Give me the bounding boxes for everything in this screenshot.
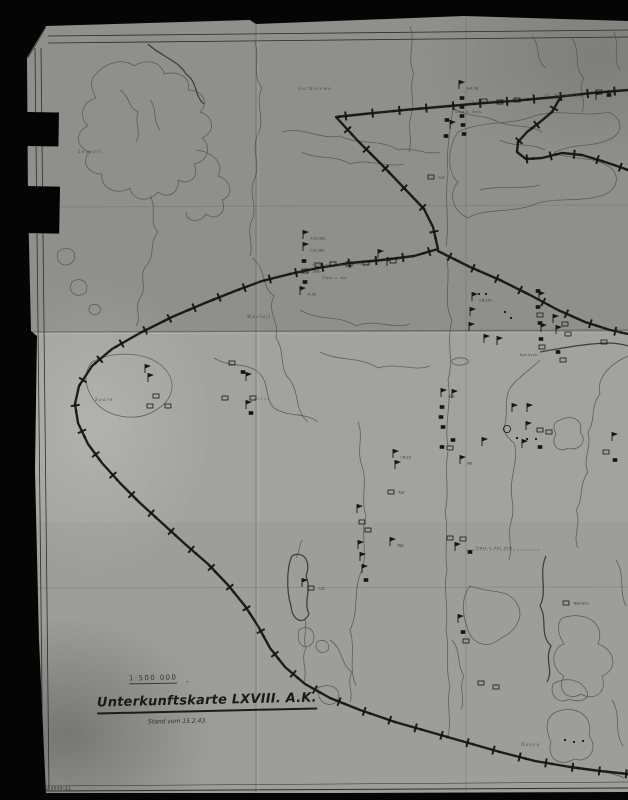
unit-label: Kgr. — [399, 490, 406, 494]
unit-rect-filled — [444, 134, 449, 138]
boundary-dot — [343, 703, 346, 706]
unit-label: Stab — [313, 269, 322, 273]
boundary-dot — [388, 171, 391, 174]
unit-symbol — [303, 280, 308, 284]
unit-symbol — [536, 305, 541, 309]
unit-symbol — [539, 337, 544, 341]
unit-rect-filled — [303, 280, 308, 284]
unit-label: I.R.151 — [480, 298, 493, 302]
boundary-dot — [532, 157, 535, 160]
map-date-line: Stand vom 15.2.43. — [148, 717, 207, 725]
boundary-dot — [232, 591, 235, 594]
unit-symbol — [440, 445, 445, 449]
unit-symbol — [516, 437, 518, 439]
place-label: O. Bershino — [545, 94, 583, 99]
boundary-dot — [477, 269, 480, 272]
unit-dot — [564, 739, 566, 741]
boundary-tick — [614, 87, 615, 96]
boundary-dot — [237, 288, 240, 291]
boundary-dot — [579, 154, 582, 157]
unit-rect-filled — [536, 305, 541, 309]
boundary-dot — [527, 98, 530, 101]
boundary-tick — [527, 154, 528, 163]
boundary-dot — [319, 691, 322, 694]
boundary-tick — [399, 106, 400, 115]
boundary-dot — [473, 103, 476, 106]
unit-rect-filled — [439, 415, 444, 419]
boundary-dot — [499, 279, 502, 282]
boundary-dot — [350, 133, 353, 136]
unit-rect-filled — [364, 578, 369, 582]
unit-symbol — [302, 259, 307, 263]
unit-label: Nachsch. — [574, 601, 590, 605]
boundary-dot — [595, 324, 598, 327]
boundary-dot — [420, 728, 423, 731]
unit-symbol — [478, 293, 480, 295]
boundary-dot — [599, 770, 602, 773]
unit-rect-filled — [613, 458, 618, 462]
place-label: Nasva — [520, 743, 540, 748]
boundary-dot — [449, 105, 452, 108]
boundary-dot — [419, 107, 422, 110]
unit-symbol — [485, 293, 487, 295]
boundary-dot — [163, 320, 166, 323]
boundary-dot — [524, 291, 527, 294]
micro-annotation: Tross u. Kol. Arm. — [475, 546, 514, 550]
boundary-dot — [338, 115, 341, 118]
unit-label: A.A.18 — [467, 86, 479, 90]
unit-dot — [516, 437, 518, 439]
boundary-dot — [577, 767, 580, 770]
unit-symbol — [460, 114, 465, 118]
unit-symbol — [526, 438, 528, 440]
micro-annotation: Stab u. Vers. — [455, 110, 483, 114]
photo-bottom-edge — [0, 793, 628, 800]
boundary-dot — [547, 304, 550, 307]
unit-dot — [573, 741, 575, 743]
micro-annotation: Nachsch. — [520, 353, 539, 357]
boundary-dot — [94, 362, 97, 365]
boundary-tick — [426, 104, 427, 113]
boundary-dot — [446, 736, 449, 739]
unit-dot — [504, 311, 506, 313]
boundary-dot — [263, 279, 266, 282]
boundary-dot — [115, 345, 118, 348]
unit-symbol — [461, 123, 466, 127]
unit-dot — [535, 438, 537, 440]
unit-symbol — [504, 311, 506, 313]
unit-symbol — [441, 425, 446, 429]
boundary-dot — [601, 160, 604, 163]
boundary-dot — [75, 410, 78, 413]
unit-symbol — [607, 93, 612, 97]
unit-rect-filled — [461, 123, 466, 127]
unit-symbol — [613, 458, 618, 462]
unit-rect-filled — [556, 350, 561, 354]
unit-label: I./G.283 — [311, 248, 325, 252]
boundary-dot — [625, 168, 628, 171]
boundary-tick — [402, 253, 403, 262]
boundary-dot — [571, 315, 574, 318]
unit-label: Laz. — [319, 586, 326, 590]
unit-symbol — [510, 317, 512, 319]
photo-tab-lower — [23, 186, 60, 234]
unit-symbol — [451, 438, 456, 442]
unit-label: I.R.23 — [401, 455, 411, 459]
unit-rect-filled — [302, 259, 307, 263]
place-label: Wuoleji — [247, 315, 271, 320]
unit-label: Pi.32 — [308, 292, 317, 296]
boundary-dot — [404, 188, 407, 191]
unit-symbol — [445, 118, 450, 122]
unit-label: Btl. — [468, 461, 474, 465]
unit-rect-filled — [460, 96, 465, 100]
boundary-tick — [480, 99, 481, 108]
boundary-dot — [517, 141, 520, 144]
unit-rect-filled — [461, 630, 466, 634]
unit-rect-filled — [249, 411, 254, 415]
place-label: Garbolowo — [298, 87, 332, 92]
unit-symbol — [573, 741, 575, 743]
boundary-dot — [551, 763, 554, 766]
boundary-tick — [345, 111, 346, 120]
boundary-dot — [174, 534, 177, 537]
unit-symbol — [439, 415, 444, 419]
boundary-tick — [534, 95, 535, 104]
boundary-dot — [98, 458, 101, 461]
unit-rect-filled — [440, 445, 445, 449]
unit-rect-filled — [468, 550, 473, 554]
unit-dot — [582, 740, 584, 742]
edge-mark: u 4049-43 — [46, 786, 71, 791]
place-label: Saare — [95, 398, 113, 403]
boundary-dot — [154, 516, 157, 519]
boundary-dot — [116, 478, 119, 481]
map-canvas: II./G.283I./G.283StabPi.32A.A.18Laz.I.R.… — [0, 0, 628, 800]
boundary-dot — [262, 635, 265, 638]
unit-rect-filled — [538, 445, 543, 449]
unit-rect-filled — [460, 105, 465, 109]
unit-rect-filled — [445, 118, 450, 122]
unit-dot — [485, 293, 487, 295]
boundary-dot — [214, 571, 217, 574]
unit-symbol — [241, 370, 246, 374]
place-label: Lepsari — [77, 150, 102, 155]
boundary-dot — [392, 110, 395, 113]
unit-symbol — [460, 96, 465, 100]
unit-dot — [510, 317, 512, 319]
unit-symbol — [535, 438, 537, 440]
boundary-dot — [524, 757, 527, 760]
unit-symbol — [564, 739, 566, 741]
boundary-dot — [342, 263, 345, 266]
unit-rect-filled — [539, 337, 544, 341]
boundary-dot — [423, 208, 426, 211]
unit-symbol — [249, 411, 254, 415]
boundary-tick — [574, 150, 575, 159]
boundary-dot — [289, 273, 292, 276]
unit-symbol — [582, 740, 584, 742]
boundary-tick — [626, 769, 627, 778]
boundary-dot — [454, 258, 457, 261]
unit-label: Laz. — [439, 175, 446, 179]
boundary-dot — [422, 252, 425, 255]
boundary-dot — [248, 612, 251, 615]
boundary-dot — [394, 721, 397, 724]
boundary-dot — [194, 552, 197, 555]
photo-tab-upper — [26, 112, 59, 147]
boundary-dot — [83, 435, 86, 438]
boundary-tick — [453, 101, 454, 110]
boundary-dot — [296, 676, 299, 679]
unit-symbol — [461, 630, 466, 634]
unit-symbol — [460, 105, 465, 109]
boundary-tick — [372, 109, 373, 118]
boundary-tick — [71, 405, 80, 406]
unit-symbol — [556, 350, 561, 354]
micro-annotation: Tross u. Kol. — [321, 276, 349, 280]
unit-rect-filled — [607, 93, 612, 97]
boundary-dot — [187, 309, 190, 312]
unit-label: II./G.283 — [311, 236, 326, 240]
boundary-dot — [607, 90, 610, 93]
unit-rect-filled — [441, 425, 446, 429]
unit-symbol — [538, 445, 543, 449]
boundary-dot — [277, 658, 280, 661]
boundary-dot — [434, 236, 437, 239]
boundary-tick — [376, 256, 377, 265]
photographed-map: II./G.283I./G.283StabPi.32A.A.18Laz.I.R.… — [0, 0, 628, 800]
boundary-dot — [498, 750, 501, 753]
unit-label: Rgt. — [398, 543, 405, 547]
map-scale: 1:500 000 — [129, 674, 178, 685]
unit-rect-filled — [241, 370, 246, 374]
unit-symbol — [444, 134, 449, 138]
unit-rect-filled — [451, 438, 456, 442]
boundary-dot — [551, 111, 554, 114]
boundary-tick — [322, 263, 323, 272]
boundary-dot — [365, 112, 368, 115]
unit-symbol — [364, 578, 369, 582]
unit-dot — [478, 293, 480, 295]
unit-symbol — [468, 550, 473, 554]
boundary-tick — [507, 97, 508, 106]
boundary-dot — [78, 384, 81, 387]
boundary-dot — [369, 152, 372, 155]
boundary-dot — [531, 127, 534, 130]
boundary-tick — [587, 89, 588, 98]
unit-symbol — [440, 405, 445, 409]
unit-dot — [526, 438, 528, 440]
boundary-dot — [472, 743, 475, 746]
boundary-dot — [369, 712, 372, 715]
scale-dash: - — [186, 677, 189, 686]
boundary-dot — [555, 153, 558, 156]
unit-rect-filled — [460, 114, 465, 118]
boundary-dot — [212, 298, 215, 301]
boundary-dot — [135, 498, 138, 501]
unit-rect-filled — [440, 405, 445, 409]
boundary-tick — [572, 763, 573, 772]
